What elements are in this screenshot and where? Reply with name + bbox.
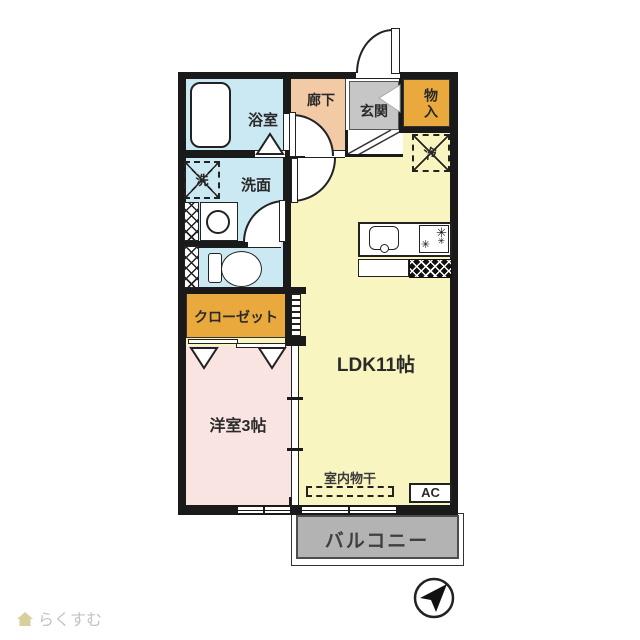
washing-machine-label: 洗	[184, 170, 220, 189]
stove-burners: ✳ ✳ ✳	[419, 225, 449, 253]
window-western-room	[238, 505, 290, 515]
entrance-label: 玄関	[349, 101, 399, 121]
wall-top	[178, 72, 458, 79]
wall-right	[450, 72, 458, 515]
kitchen-counter-front	[358, 259, 409, 277]
logo: らくすむ	[16, 606, 102, 630]
pipe-space-upper	[184, 202, 199, 241]
balcony-label: バルコニー	[307, 526, 447, 553]
wall-duct-hatched	[291, 293, 301, 338]
logo-text: らくすむ	[38, 606, 102, 630]
corridor-label: 廊下	[296, 90, 346, 110]
ldk-label: LDK11帖	[316, 350, 436, 377]
partition-tick	[287, 448, 303, 451]
toilet-tank	[208, 253, 222, 283]
indoor-drying-rail	[306, 486, 394, 497]
closet-door-triangle-left	[189, 346, 219, 370]
bath-label: 浴室	[233, 109, 293, 130]
storage-label: 物入	[413, 83, 441, 125]
entrance-door-leaf	[391, 28, 400, 74]
entrance-step	[346, 130, 403, 156]
washbasin-bowl	[206, 210, 230, 234]
washroom-label: 洗面	[226, 174, 286, 195]
floor-plan-page: ✳ ✳ ✳ 洗 冷 室内物干 AC 浴室 廊下 玄関 物入 洗面 クローゼット …	[0, 0, 640, 640]
entrance-door-swing	[356, 29, 393, 73]
indoor-drying-label: 室内物干	[306, 468, 394, 487]
kitchen-hatched-unit	[409, 259, 452, 278]
step-diagonal-lines	[346, 130, 403, 156]
ldk-door-leaf	[291, 158, 298, 203]
wall-storage-bottom	[399, 127, 458, 133]
pipe-space-lower	[184, 246, 199, 288]
western-room-label: 洋室3帖	[188, 412, 288, 436]
kitchen-sink-drain	[380, 244, 389, 253]
toilet-door-leaf	[279, 200, 286, 242]
closet-door-triangle-right	[257, 346, 287, 370]
partition-tick	[287, 397, 303, 400]
sliding-partition	[291, 346, 299, 505]
wall-step-left	[345, 130, 348, 157]
wall-closet-corner	[285, 336, 306, 346]
closet-label: クローゼット	[186, 307, 286, 327]
closet-sliding-door-left	[188, 339, 238, 344]
ac-label: AC	[409, 485, 452, 500]
toilet-door-opening	[248, 241, 281, 248]
bathtub	[190, 82, 231, 148]
compass-icon	[411, 575, 457, 621]
bath-door-triangle	[255, 132, 285, 156]
burner-icon: ✳	[437, 237, 445, 246]
burner-icon: ✳	[421, 240, 430, 251]
house-icon	[16, 610, 34, 627]
wall-bath-corridor	[283, 72, 291, 114]
wall-step-bottom	[345, 154, 403, 157]
window-balcony-door	[302, 505, 396, 515]
wall-below-bath	[178, 150, 255, 158]
toilet-bowl	[221, 251, 262, 287]
